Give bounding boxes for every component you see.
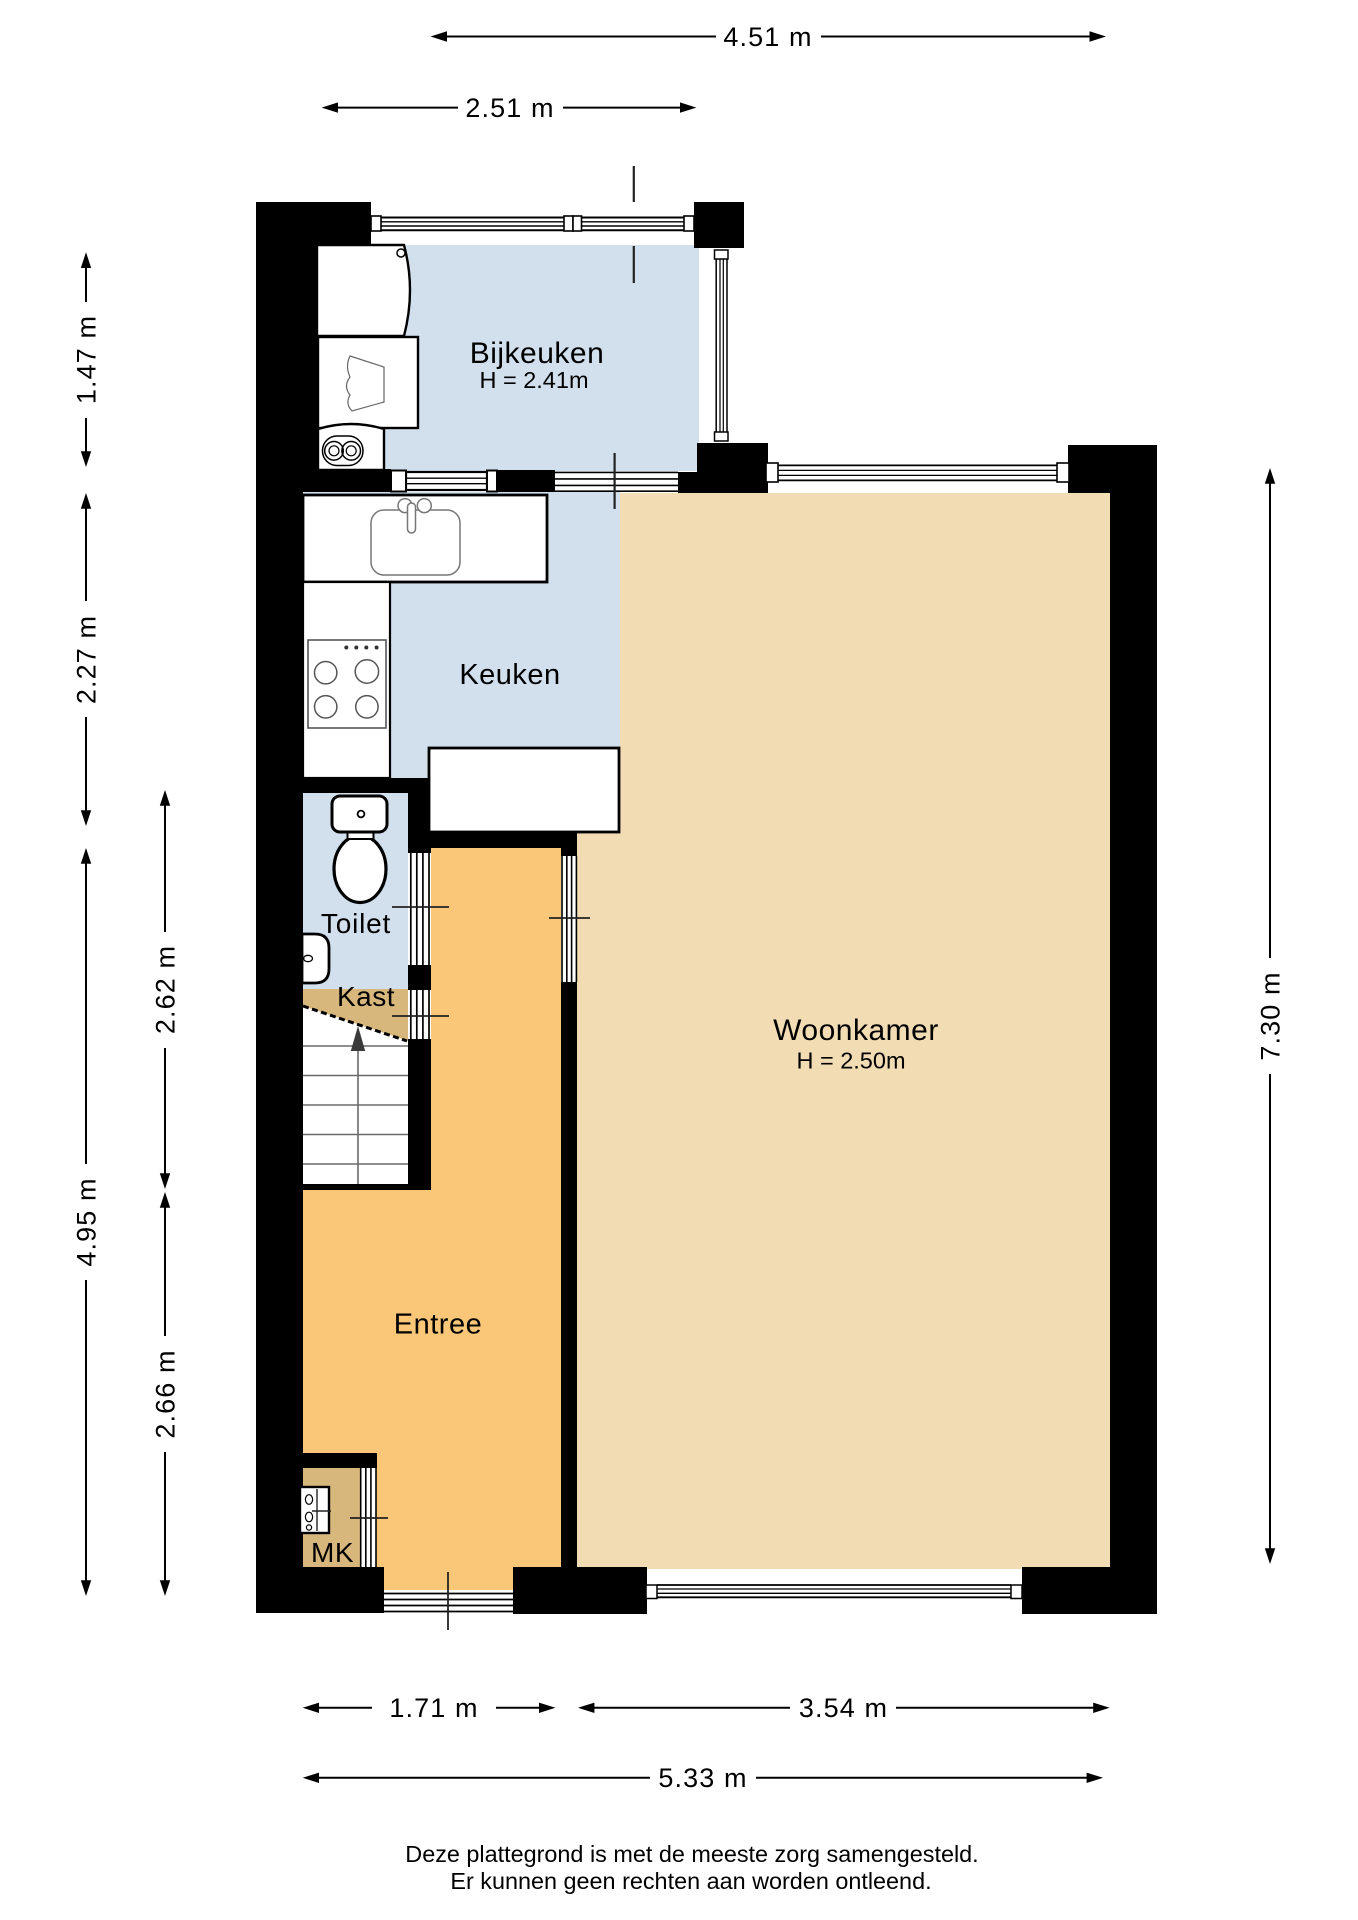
svg-text:1.71 m: 1.71 m [389,1693,478,1723]
svg-text:H = 2.41m: H = 2.41m [479,367,588,393]
svg-text:2.51 m: 2.51 m [465,93,554,123]
svg-text:7.30 m: 7.30 m [1256,971,1286,1060]
svg-text:MK: MK [311,1537,354,1568]
svg-text:Kast: Kast [337,981,395,1012]
svg-text:2.62 m: 2.62 m [151,945,181,1034]
svg-text:2.66 m: 2.66 m [151,1349,181,1438]
svg-text:Keuken: Keuken [459,659,560,691]
svg-text:2.27 m: 2.27 m [72,615,102,704]
svg-text:5.33 m: 5.33 m [658,1763,747,1793]
svg-text:1.47 m: 1.47 m [72,315,102,404]
svg-text:3.54 m: 3.54 m [799,1693,888,1723]
svg-text:Deze plattegrond is met de mee: Deze plattegrond is met de meeste zorg s… [405,1841,978,1867]
svg-text:4.95 m: 4.95 m [72,1177,102,1266]
svg-text:Toilet: Toilet [321,908,391,939]
svg-text:4.51 m: 4.51 m [723,22,812,52]
svg-text:Er kunnen geen rechten aan wor: Er kunnen geen rechten aan worden ontlee… [450,1868,931,1894]
svg-text:H = 2.50m: H = 2.50m [796,1048,905,1074]
svg-text:Entree: Entree [394,1309,482,1341]
svg-text:Bijkeuken: Bijkeuken [470,337,605,370]
svg-text:Woonkamer: Woonkamer [773,1014,939,1047]
